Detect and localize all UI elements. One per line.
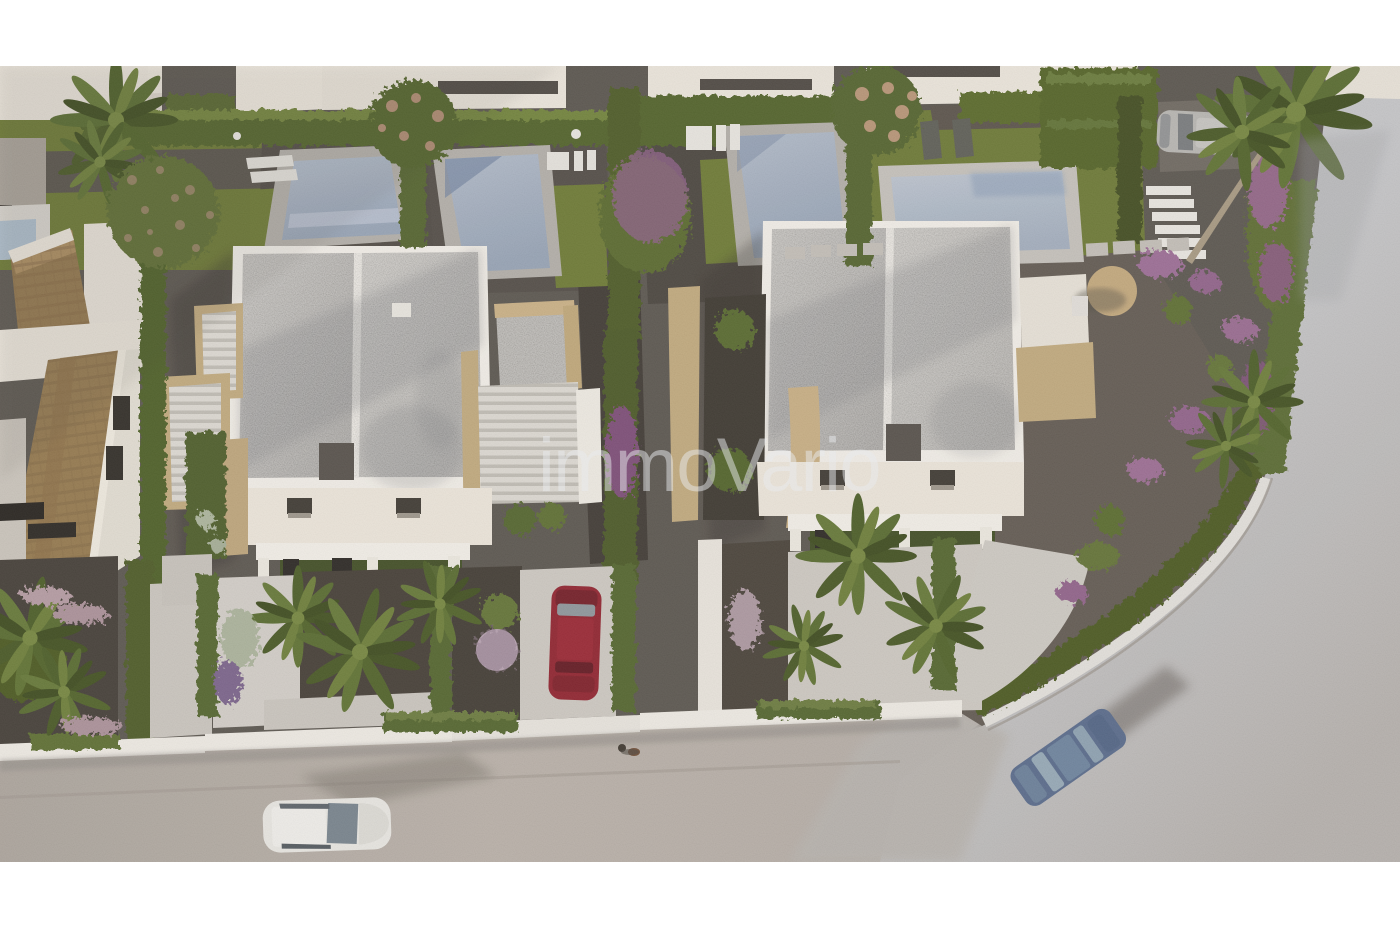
svg-text:immoVario: immoVario (538, 423, 880, 508)
